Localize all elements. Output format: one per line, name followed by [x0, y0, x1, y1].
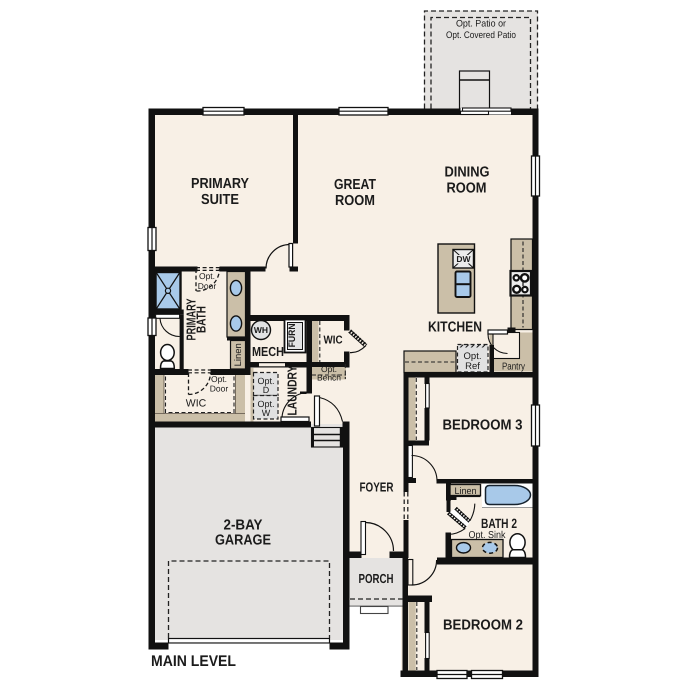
svg-text:GREAT: GREAT: [334, 177, 376, 193]
svg-text:BEDROOM 2: BEDROOM 2: [443, 618, 523, 634]
svg-text:WIC: WIC: [186, 398, 207, 410]
svg-text:Pantry: Pantry: [502, 362, 525, 373]
svg-text:2-BAY: 2-BAY: [224, 518, 263, 534]
svg-text:BATH 2: BATH 2: [481, 516, 517, 531]
svg-text:D: D: [263, 385, 270, 395]
svg-text:Linen: Linen: [233, 343, 244, 366]
svg-text:LAUNDRY: LAUNDRY: [285, 365, 300, 415]
svg-text:Opt.: Opt.: [199, 271, 215, 281]
svg-text:Ref: Ref: [465, 361, 480, 372]
svg-text:Opt. Covered Patio: Opt. Covered Patio: [446, 30, 516, 41]
svg-text:W: W: [262, 408, 271, 418]
svg-text:BEDROOM 3: BEDROOM 3: [443, 418, 523, 434]
svg-text:ROOM: ROOM: [447, 181, 487, 197]
svg-text:Linen: Linen: [455, 486, 477, 497]
svg-text:SUITE: SUITE: [201, 192, 239, 208]
svg-text:WIC: WIC: [324, 335, 343, 347]
svg-text:DW: DW: [456, 254, 471, 264]
svg-text:PRIMARY: PRIMARY: [191, 176, 249, 192]
svg-text:Opt. Patio or: Opt. Patio or: [456, 19, 506, 30]
svg-text:WH: WH: [254, 325, 268, 335]
svg-text:Door: Door: [210, 384, 229, 394]
svg-text:MECH: MECH: [252, 344, 284, 359]
svg-text:Opt.: Opt.: [211, 374, 227, 384]
svg-text:Bench: Bench: [317, 373, 341, 383]
svg-text:FURN: FURN: [287, 323, 298, 347]
svg-text:ROOM: ROOM: [335, 193, 375, 209]
svg-text:MAIN LEVEL: MAIN LEVEL: [151, 653, 236, 670]
svg-text:Door: Door: [198, 281, 217, 291]
svg-text:FOYER: FOYER: [360, 480, 394, 495]
svg-text:PORCH: PORCH: [359, 571, 394, 586]
svg-text:DINING: DINING: [445, 165, 490, 181]
svg-text:KITCHEN: KITCHEN: [428, 320, 482, 336]
svg-text:BATH: BATH: [194, 306, 209, 333]
svg-text:GARAGE: GARAGE: [215, 533, 271, 549]
